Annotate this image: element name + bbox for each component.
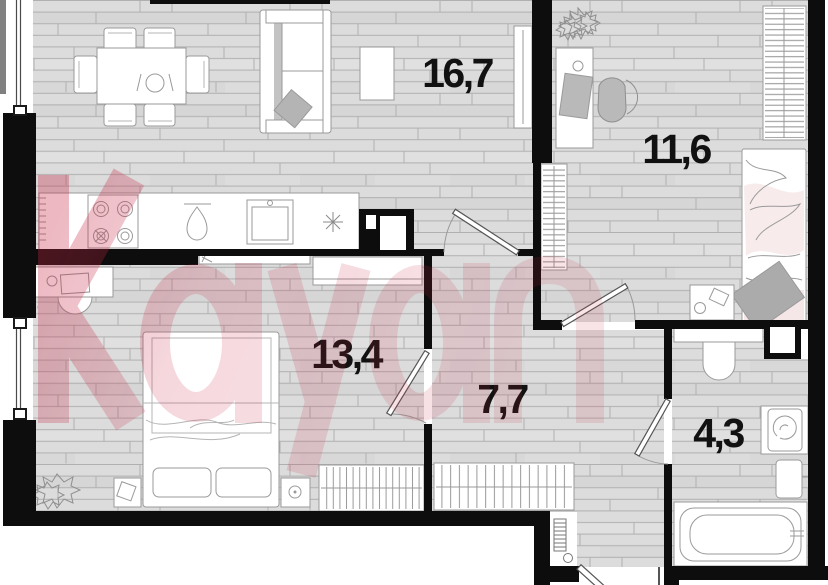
svg-text:16,7: 16,7 bbox=[422, 50, 492, 96]
svg-text:11,6: 11,6 bbox=[642, 126, 711, 172]
svg-text:4,3: 4,3 bbox=[693, 410, 744, 456]
